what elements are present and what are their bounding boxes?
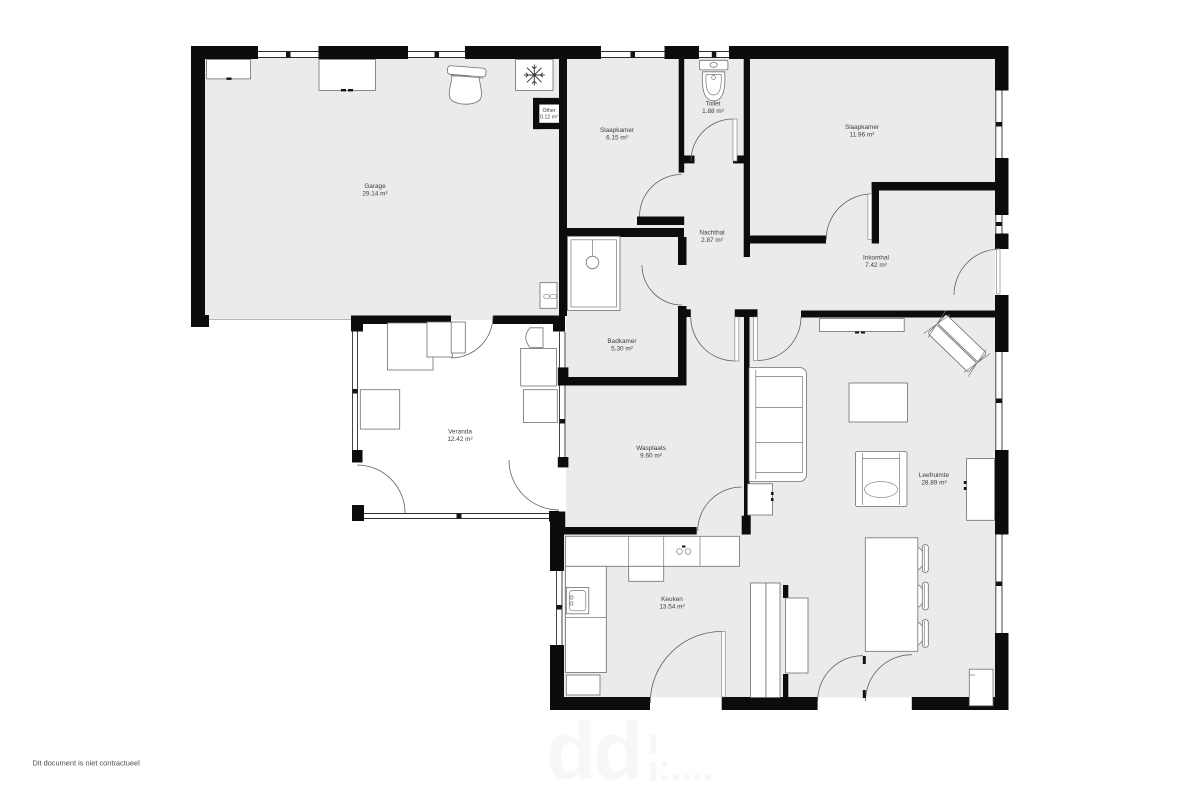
svg-text:28.89 m²: 28.89 m² [921, 479, 946, 486]
svg-text:Toilet: Toilet [706, 101, 721, 108]
svg-text:Nachthal: Nachthal [699, 230, 724, 237]
svg-text:11.96 m²: 11.96 m² [850, 131, 875, 138]
svg-text:Garage: Garage [364, 183, 386, 190]
svg-text:dd: dd [546, 706, 640, 797]
svg-text:5.30 m²: 5.30 m² [611, 345, 633, 352]
svg-text:Inkomhal: Inkomhal [863, 255, 889, 262]
svg-text:13.54 m²: 13.54 m² [659, 603, 684, 610]
svg-text:Other: Other [543, 108, 556, 114]
svg-text:Dit document is niet contractu: Dit document is niet contractueel [33, 759, 141, 768]
svg-text:Keuken: Keuken [661, 596, 683, 603]
svg-text:Badkamer: Badkamer [607, 338, 637, 345]
svg-text:6.15 m²: 6.15 m² [606, 134, 628, 141]
svg-text:0.12 m²: 0.12 m² [540, 115, 558, 121]
svg-text:Leefruimte: Leefruimte [919, 472, 950, 479]
svg-text:Slaapkamer: Slaapkamer [845, 124, 880, 131]
svg-text:7.42 m²: 7.42 m² [865, 262, 887, 269]
svg-text:29.14 m²: 29.14 m² [362, 190, 387, 197]
svg-text::....: :.... [658, 747, 713, 789]
svg-text:2.87 m²: 2.87 m² [701, 237, 723, 244]
svg-text:9.60 m²: 9.60 m² [640, 452, 662, 459]
svg-text:12.42 m²: 12.42 m² [447, 436, 472, 443]
svg-text:Wasplaats: Wasplaats [636, 445, 666, 452]
svg-text:Veranda: Veranda [448, 429, 472, 436]
svg-text:1.88 m²: 1.88 m² [702, 108, 724, 115]
svg-text:Slaapkamer: Slaapkamer [600, 127, 635, 134]
